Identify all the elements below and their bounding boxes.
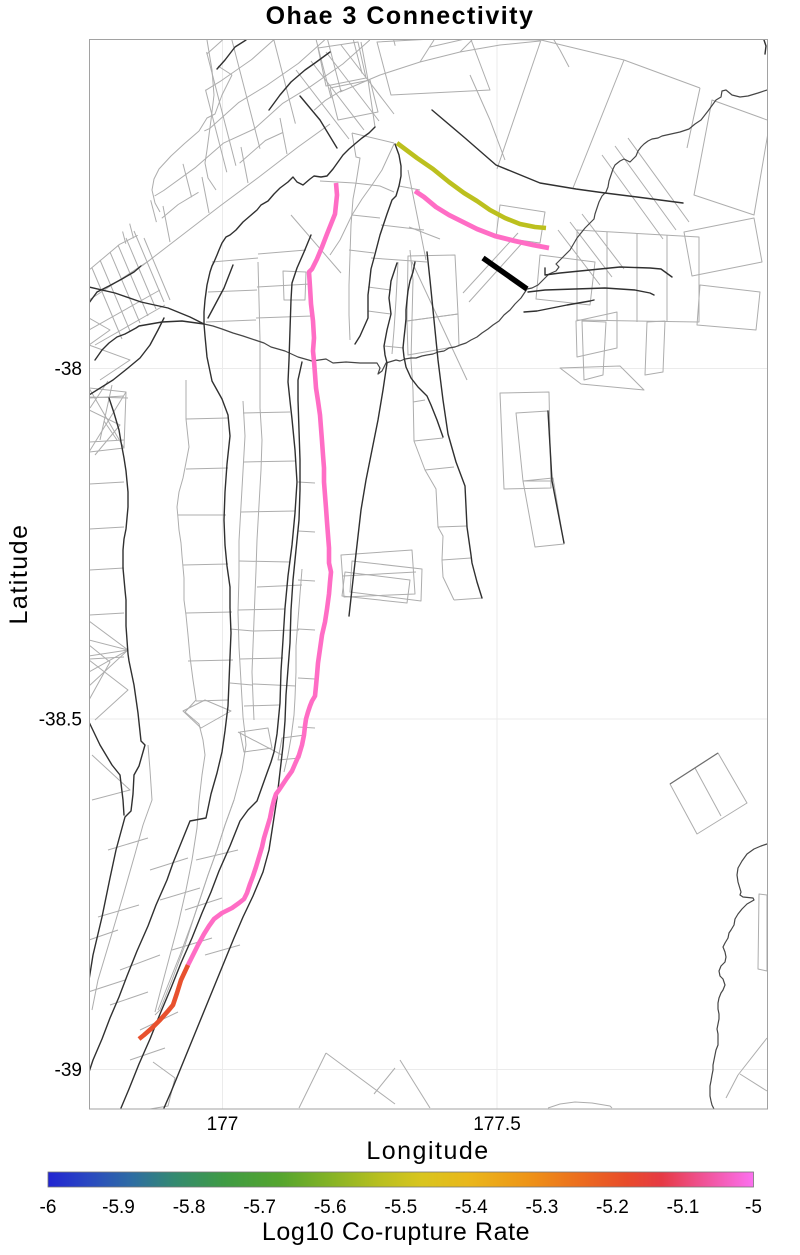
- svg-text:177.5: 177.5: [473, 1114, 521, 1135]
- svg-text:Ohae 3 Connectivity: Ohae 3 Connectivity: [266, 2, 535, 30]
- svg-text:Latitude: Latitude: [5, 524, 33, 625]
- svg-text:-38.5: -38.5: [39, 710, 82, 731]
- svg-text:177: 177: [207, 1114, 239, 1135]
- svg-text:-5: -5: [745, 1197, 762, 1218]
- svg-text:-5.6: -5.6: [314, 1197, 347, 1218]
- svg-text:-5.4: -5.4: [455, 1197, 488, 1218]
- svg-text:Longitude: Longitude: [366, 1137, 489, 1165]
- svg-text:-5.7: -5.7: [243, 1197, 276, 1218]
- svg-text:-39: -39: [55, 1060, 82, 1081]
- svg-text:-5.1: -5.1: [667, 1197, 700, 1218]
- svg-text:-5.2: -5.2: [596, 1197, 629, 1218]
- svg-text:-6: -6: [40, 1197, 57, 1218]
- svg-text:-5.8: -5.8: [173, 1197, 206, 1218]
- svg-text:-5.3: -5.3: [526, 1197, 559, 1218]
- svg-text:Log10 Co-rupture Rate: Log10 Co-rupture Rate: [262, 1218, 530, 1246]
- svg-text:-38: -38: [55, 359, 82, 380]
- svg-text:-5.5: -5.5: [384, 1197, 417, 1218]
- svg-text:-5.9: -5.9: [102, 1197, 135, 1218]
